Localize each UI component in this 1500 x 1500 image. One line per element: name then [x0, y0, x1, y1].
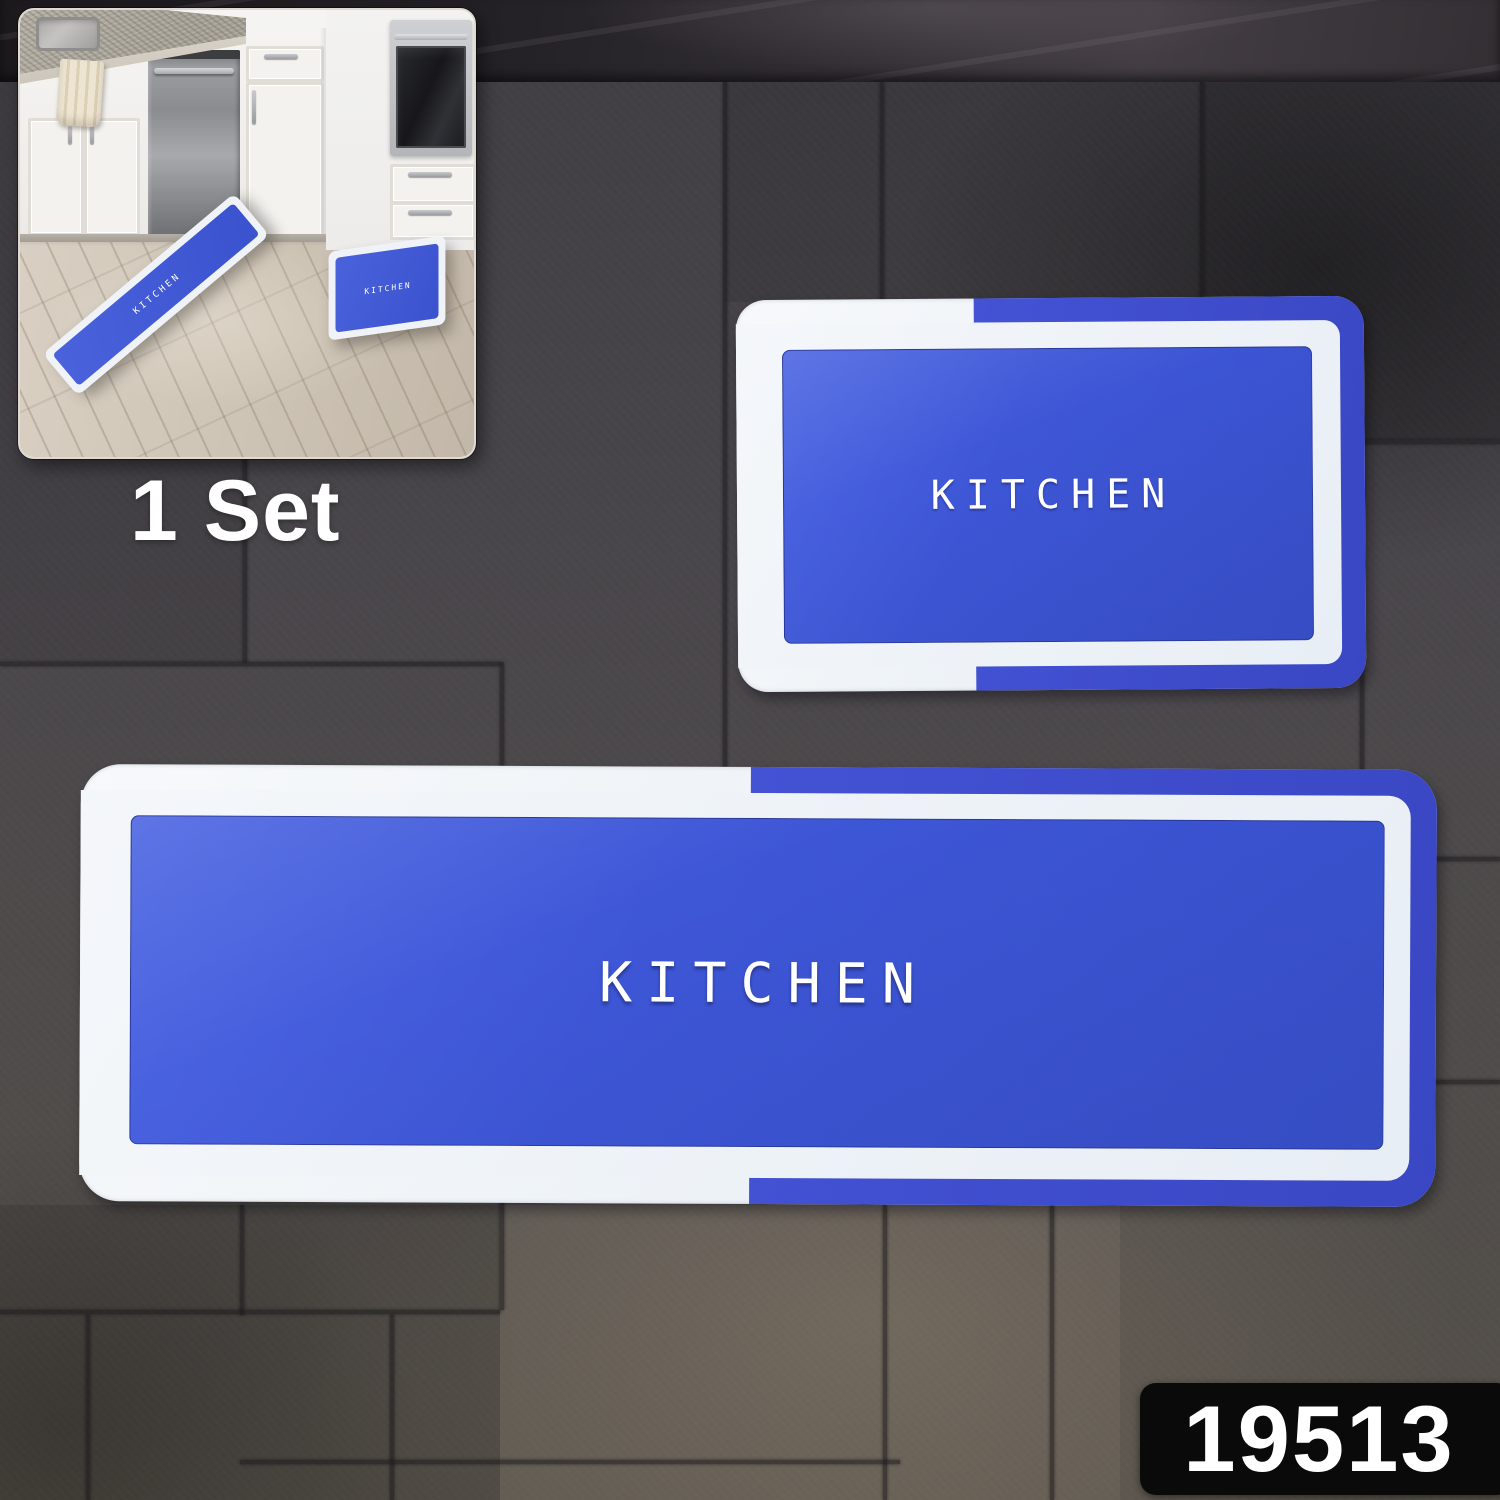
grout-line [240, 1460, 900, 1464]
oven-handle [394, 34, 468, 40]
cabinet-drawer [390, 202, 476, 240]
grout-line [883, 1205, 887, 1500]
grout-line [1430, 857, 1500, 861]
cabinet-handle [408, 210, 452, 215]
grout-line [86, 1315, 90, 1500]
grout-line [240, 1205, 244, 1315]
product-code-text: 19513 [1183, 1385, 1468, 1493]
inset-small-mat-label: KITCHEN [362, 280, 411, 296]
inset-small-mat: KITCHEN [329, 235, 446, 340]
cabinet-handle [68, 126, 72, 144]
hand-towel [56, 59, 104, 128]
cabinet-door [28, 118, 84, 236]
grout-line [723, 82, 727, 768]
mat-label-small: KITCHEN [920, 471, 1177, 519]
kitchen-mat-large: KITCHEN [79, 764, 1437, 1207]
inset-photo: KITCHEN KITCHEN [18, 8, 476, 459]
inset-runner-label: KITCHEN [129, 271, 183, 318]
mat-panel: KITCHEN [129, 815, 1384, 1149]
cabinet-handle [408, 172, 452, 177]
grout-line [390, 1315, 394, 1500]
cabinet-toe-kick [20, 234, 326, 242]
product-code-badge: 19513 [1140, 1383, 1500, 1495]
kitchen-sink [36, 17, 100, 51]
tile-shade [723, 82, 1200, 302]
kitchen-mat-small: KITCHEN [736, 296, 1367, 692]
mat-panel: KITCHEN [782, 346, 1314, 644]
cabinet-handle [252, 90, 256, 124]
cabinet-drawer [246, 46, 324, 82]
cabinet-handle [264, 54, 298, 59]
cabinet-door [246, 82, 324, 238]
dishwasher-handle [154, 68, 234, 74]
mat-label-large: KITCHEN [585, 950, 929, 1015]
grout-line [1050, 1205, 1054, 1500]
tile-shade [0, 1205, 500, 1500]
grout-line [1430, 1080, 1500, 1084]
grout-line [880, 82, 884, 300]
oven-window [396, 46, 466, 148]
wall-oven [390, 20, 472, 156]
grout-line [0, 1310, 500, 1314]
cabinet-handle [90, 126, 94, 144]
grout-line [0, 662, 500, 666]
set-count-label: 1 Set [130, 462, 341, 561]
product-image: KITCHEN KITCHEN 1 Set KITCHEN KITCHEN 19… [0, 0, 1500, 1500]
cabinet-drawer [390, 164, 476, 204]
tile-shade [500, 1205, 1120, 1500]
